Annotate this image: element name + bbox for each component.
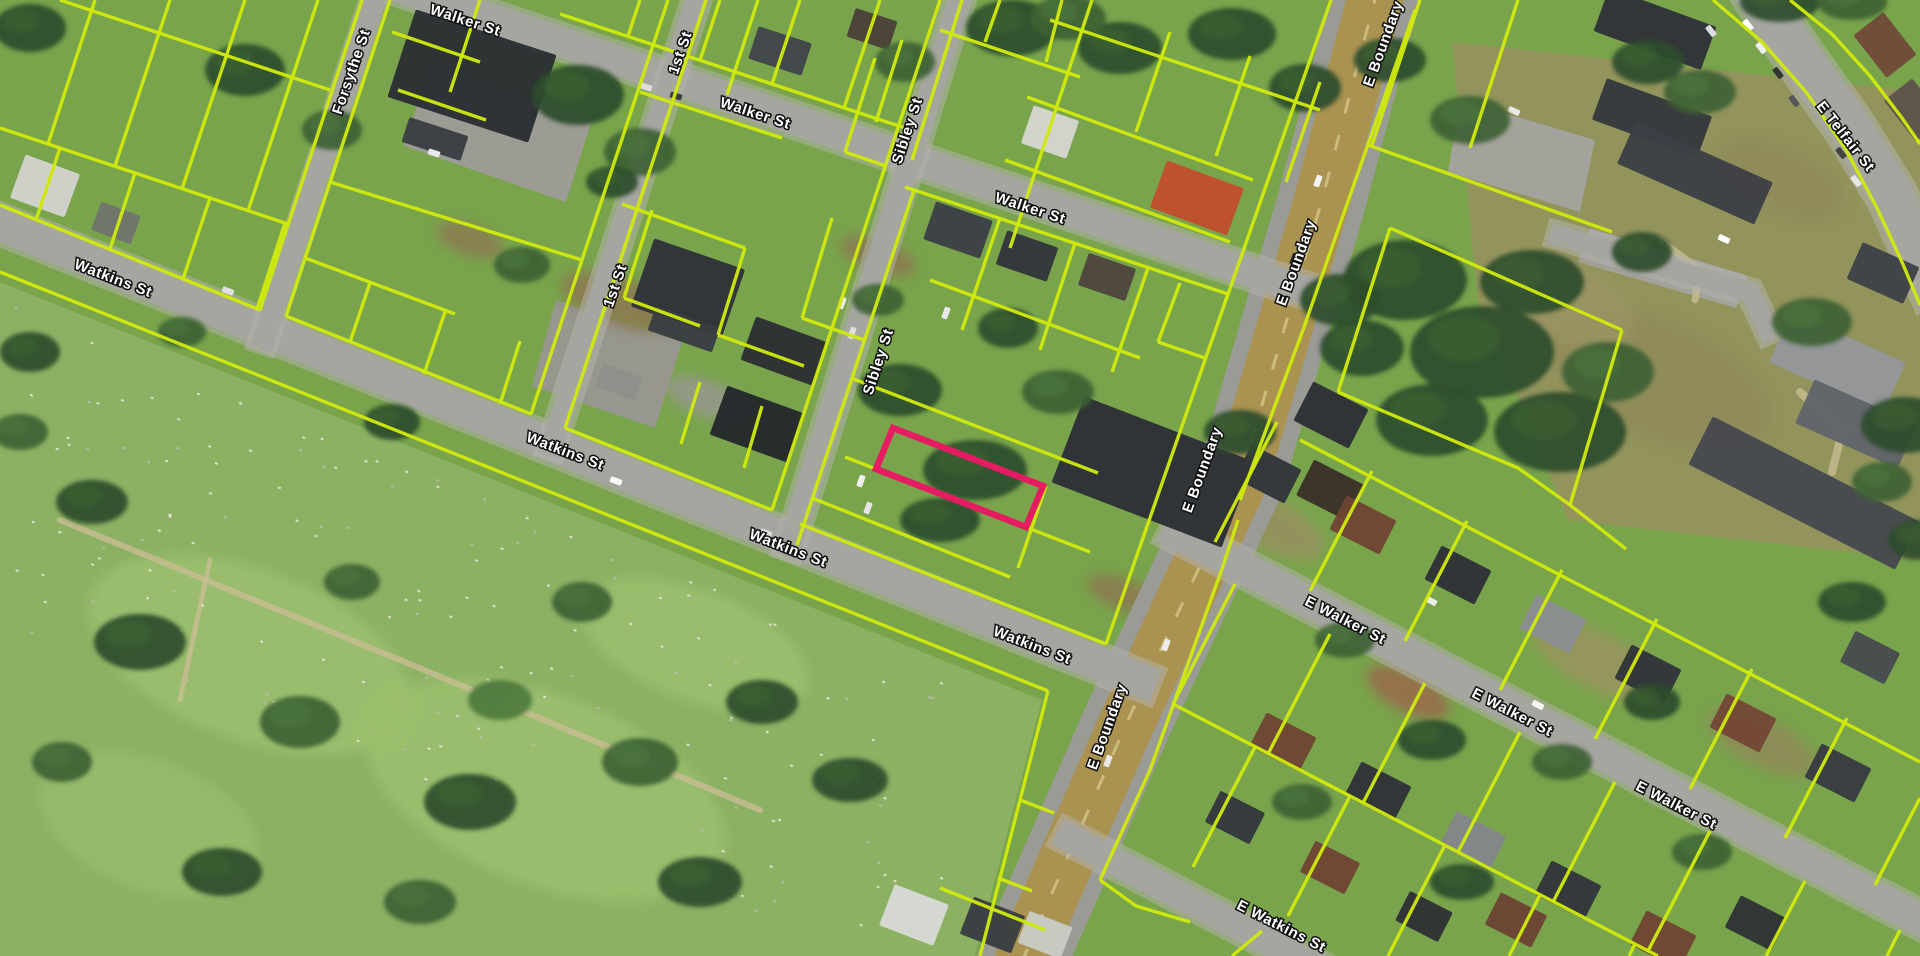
map-canvas[interactable]: Walker StWalker StWalker StForsythe St1s…: [0, 0, 1920, 956]
map-stage: Walker StWalker StWalker StForsythe St1s…: [0, 0, 1920, 956]
